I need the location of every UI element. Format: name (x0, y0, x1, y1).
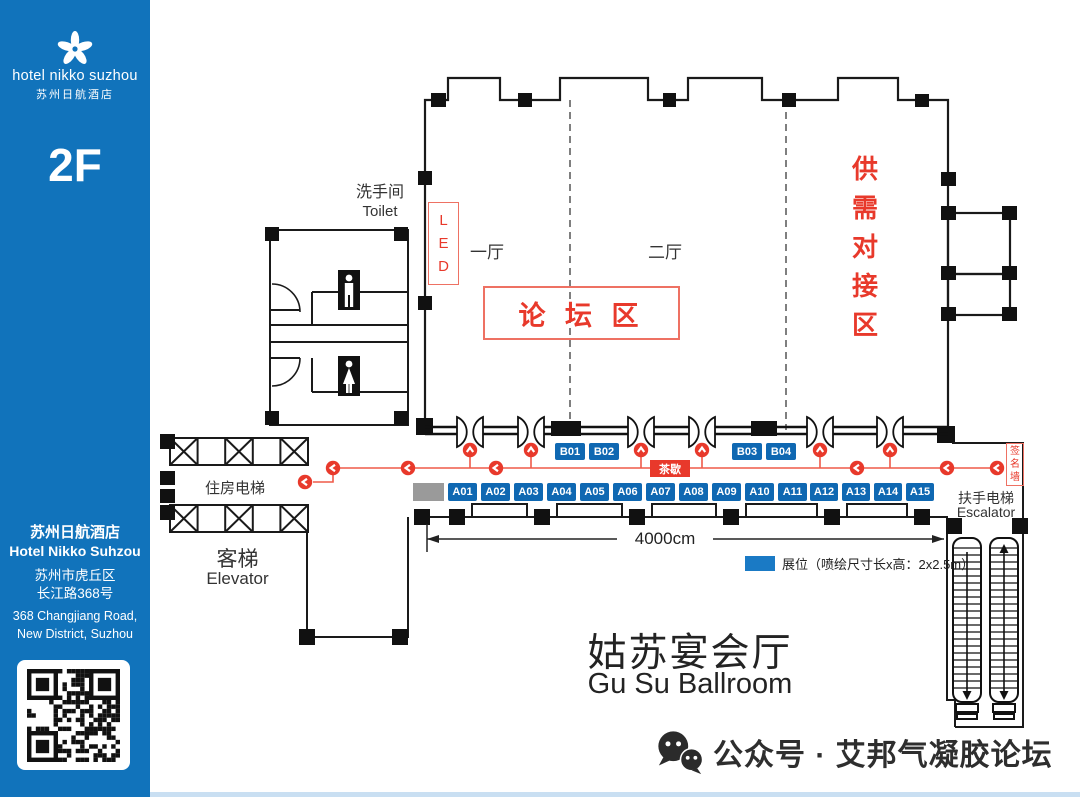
booth-a13: A13 (842, 483, 870, 501)
booth-a01: A01 (448, 483, 477, 501)
escalator-label-en: Escalator (950, 504, 1022, 520)
booth-a02: A02 (481, 483, 510, 501)
address-en-1: 368 Changjiang Road, (0, 607, 150, 625)
address-cn-2: 长江路368号 (0, 585, 150, 603)
reception-desk (413, 483, 444, 501)
booth-a11: A11 (778, 483, 807, 501)
hotel-name-cn: 苏州日航酒店 (0, 524, 150, 542)
booth-a15: A15 (906, 483, 934, 501)
sidebar: hotel nikko suzhou 苏州日航酒店 2F 苏州日航酒店 Hote… (0, 0, 150, 797)
floor-plan-page: hotel nikko suzhou 苏州日航酒店 2F 苏州日航酒店 Hote… (0, 0, 1080, 797)
escalator-columns (946, 518, 1028, 534)
booth-a12: A12 (810, 483, 838, 501)
hall-two-label: 二厅 (648, 238, 682, 263)
hall-one-label: 一厅 (470, 238, 504, 263)
booth-a03: A03 (514, 483, 543, 501)
booth-b01: B01 (555, 443, 585, 460)
booth-legend-swatch (745, 556, 775, 571)
ballroom-title-en: Gu Su Ballroom (540, 668, 840, 701)
address-en-2: New District, Suzhou (0, 625, 150, 643)
hotel-brand-en: hotel nikko suzhou (0, 68, 150, 84)
toilet-label-cn: 洗手间 (330, 183, 430, 202)
hotel-logo-icon (55, 30, 95, 66)
booth-a07: A07 (646, 483, 675, 501)
male-restroom-icon (338, 270, 360, 310)
toilet-label: 洗手间 Toilet (330, 183, 430, 221)
hotel-address-block: 苏州日航酒店 Hotel Nikko Suhzou 苏州市虎丘区 长江路368号… (0, 524, 150, 643)
guest-elevator-label-en: Elevator (180, 569, 295, 589)
hotel-name-en: Hotel Nikko Suhzou (0, 542, 150, 560)
tea-break-badge: 茶歇 (650, 460, 690, 477)
bottom-accent-strip (150, 792, 1080, 797)
booth-a05: A05 (580, 483, 609, 501)
columns (416, 93, 1017, 443)
watermark: 公众号 · 艾邦气凝胶论坛 (655, 728, 1053, 776)
booth-legend-text: 展位（喷绘尺寸长x高：2x2.5m） (782, 554, 974, 573)
booth-a09: A09 (712, 483, 741, 501)
booth-b03: B03 (732, 443, 762, 460)
booth-legend: 展位（喷绘尺寸长x高：2x2.5m） (745, 554, 974, 573)
booth-b04: B04 (766, 443, 796, 460)
ballroom-walls (425, 78, 1010, 430)
booth-a14: A14 (874, 483, 902, 501)
qr-code (17, 660, 130, 770)
wechat-icon (655, 728, 705, 776)
booth-a08: A08 (679, 483, 708, 501)
dimension-label: 4000cm (617, 528, 713, 550)
floor-label: 2F (0, 138, 150, 192)
female-restroom-icon (338, 356, 360, 396)
forum-zone: 论 坛 区 (483, 286, 680, 340)
booth-a04: A04 (547, 483, 576, 501)
booth-a10: A10 (745, 483, 774, 501)
hotel-brand-cn: 苏州日航酒店 (0, 86, 150, 102)
corridor-wall (414, 504, 948, 525)
doors (457, 417, 903, 447)
supply-demand-zone: 供 需 对 接 区 (847, 150, 883, 345)
room-elevator-label: 住房电梯 (205, 477, 265, 498)
watermark-text: 公众号 · 艾邦气凝胶论坛 (713, 730, 1053, 774)
toilet-label-en: Toilet (330, 202, 430, 221)
booth-b02: B02 (589, 443, 619, 460)
ballroom-bottom-wall (425, 427, 948, 434)
led-screen: L E D (428, 202, 459, 285)
booth-a06: A06 (613, 483, 642, 501)
signature-wall: 签 名 墙 (1006, 443, 1024, 486)
address-cn-1: 苏州市虎丘区 (0, 567, 150, 585)
